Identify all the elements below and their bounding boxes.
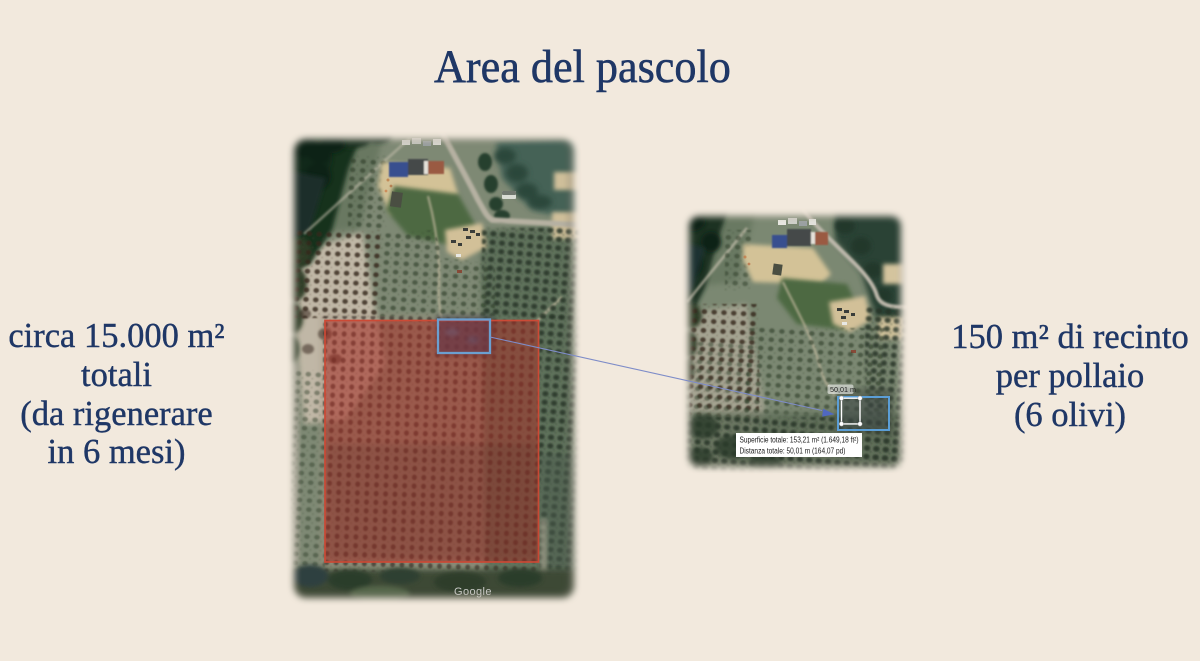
svg-text:Superficie totale: 153,21 m² (: Superficie totale: 153,21 m² (1.649,18 f… xyxy=(740,436,859,445)
svg-text:Distanza totale: 50,01 m (164,: Distanza totale: 50,01 m (164,07 pd) xyxy=(740,447,846,456)
svg-text:50,01 m: 50,01 m xyxy=(830,385,856,394)
